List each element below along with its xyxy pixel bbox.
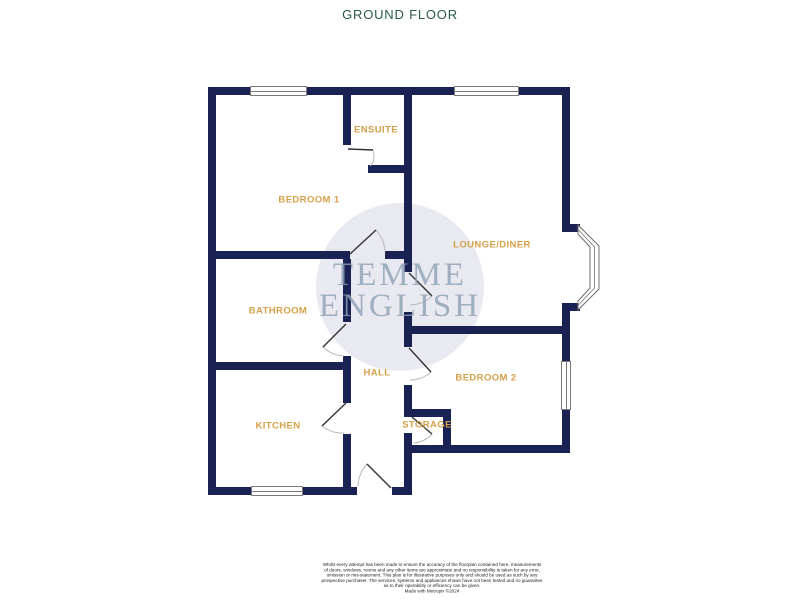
watermark-line-1: TEMME (319, 260, 481, 291)
door-arc (410, 372, 431, 380)
disclaimer-line: Made with Metropix ©2024 (277, 588, 587, 593)
door-leaf (367, 464, 391, 488)
bay-window (578, 225, 599, 310)
room-label-bedroom-1: BEDROOM 1 (278, 195, 339, 206)
door-arc (376, 230, 385, 252)
room-label-bedroom-2: BEDROOM 2 (455, 373, 516, 384)
room-label-lounge-diner: LOUNGE/DINER (453, 240, 531, 251)
disclaimer-text: Whilst every attempt has been made to en… (277, 562, 587, 594)
door-arc (322, 426, 344, 433)
room-label-kitchen: KITCHEN (255, 421, 300, 432)
floorplan-canvas: GROUND FLOOR (0, 0, 800, 600)
room-label-ensuite: ENSUITE (354, 125, 398, 136)
door-leaf (323, 324, 346, 347)
door-leaf (350, 230, 376, 254)
room-label-storage: STORAGE (402, 420, 452, 431)
door-arc (358, 464, 367, 486)
floor-title: GROUND FLOOR (0, 7, 800, 22)
door-leaf (348, 149, 373, 150)
door-leaf (322, 403, 346, 426)
door-arc (370, 150, 374, 166)
door-leaf (409, 348, 431, 372)
door-arc (323, 347, 344, 356)
watermark-line-2: ENGLISH (319, 291, 481, 322)
door-arc (413, 434, 432, 443)
room-label-bathroom: BATHROOM (249, 306, 307, 317)
room-label-hall: HALL (364, 368, 391, 379)
watermark-text: TEMME ENGLISH (319, 260, 481, 322)
